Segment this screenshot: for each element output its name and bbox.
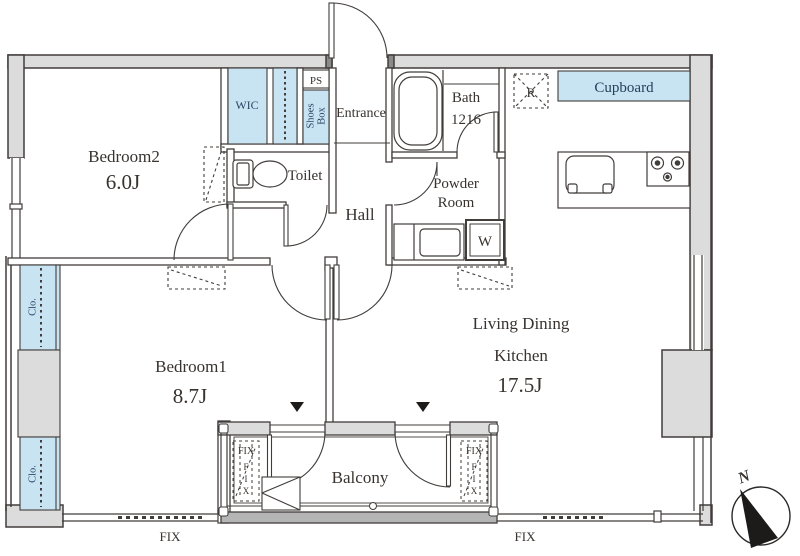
- kitchen-counter-icon: [558, 152, 690, 208]
- compass: N: [732, 467, 790, 548]
- balcony-structure: [218, 402, 498, 523]
- bath-size: 1216: [451, 112, 482, 128]
- fix-letter: F: [471, 462, 476, 472]
- hall-label: Hall: [345, 205, 375, 224]
- ldk-label-2: Kitchen: [494, 346, 548, 365]
- labels: Bedroom2 6.0J WIC PS Shoes Box Entrance …: [27, 75, 654, 544]
- outer-edges: [6, 55, 711, 523]
- washer-label: W: [478, 234, 493, 250]
- fix-letter: I: [473, 474, 476, 484]
- fix-letter: I: [245, 474, 248, 484]
- floor-plan: N Bedroom2 6.0J WIC PS Shoes Box Entranc…: [0, 0, 800, 556]
- closet2-label: Clo.: [27, 465, 38, 483]
- fix-label-balcony-right: FIX: [466, 446, 483, 457]
- bedroom2-size: 6.0J: [106, 170, 140, 194]
- drain-icon: [370, 503, 377, 510]
- compass-north-label: N: [735, 467, 754, 488]
- ac-spot-bedroom2: [204, 147, 224, 202]
- fix-letter: X: [471, 486, 478, 496]
- powder-room-label-1: Powder: [433, 176, 479, 192]
- wic-label: WIC: [235, 98, 258, 112]
- closet-1: [20, 265, 60, 350]
- outer-walls: [6, 55, 712, 527]
- door-direction-markers: [290, 402, 430, 412]
- fix-letter: F: [243, 462, 248, 472]
- wall-block: [18, 350, 60, 437]
- ac-spot-bedroom1: [168, 267, 225, 289]
- storage-areas: [18, 68, 690, 510]
- bathtub-icon: [394, 70, 499, 151]
- fix-letter: X: [243, 486, 250, 496]
- powder-room-label-2: Room: [438, 195, 475, 211]
- stove-icon: [647, 152, 689, 186]
- ps-label: PS: [310, 75, 322, 87]
- fix-label-bottom-right: FIX: [515, 529, 537, 544]
- toilet-label: Toilet: [288, 168, 324, 184]
- fridge-label: R: [527, 85, 536, 100]
- vanity-icon: [394, 224, 464, 260]
- closet1-label: Clo.: [27, 298, 38, 316]
- bedroom2-label: Bedroom2: [88, 147, 160, 166]
- ac-spot-ldk: [458, 267, 512, 289]
- bedroom1-label: Bedroom1: [155, 357, 227, 376]
- entrance-label: Entrance: [336, 106, 386, 121]
- fix-label-balcony-left: FIX: [238, 446, 255, 457]
- bedroom1-size: 8.7J: [173, 384, 207, 408]
- balcony-label: Balcony: [332, 468, 389, 487]
- ac-outdoor-unit: [262, 477, 300, 510]
- toilet-icon: [233, 160, 287, 188]
- ldk-label-1: Living Dining: [473, 314, 570, 333]
- cupboard-label: Cupboard: [594, 80, 654, 96]
- fix-label-bottom-left: FIX: [160, 529, 182, 544]
- shoes-box-label-2: Box: [316, 107, 327, 125]
- shoes-box-label-1: Shoes: [305, 103, 316, 128]
- ldk-size: 17.5J: [498, 373, 543, 397]
- bath-label: Bath: [452, 90, 481, 106]
